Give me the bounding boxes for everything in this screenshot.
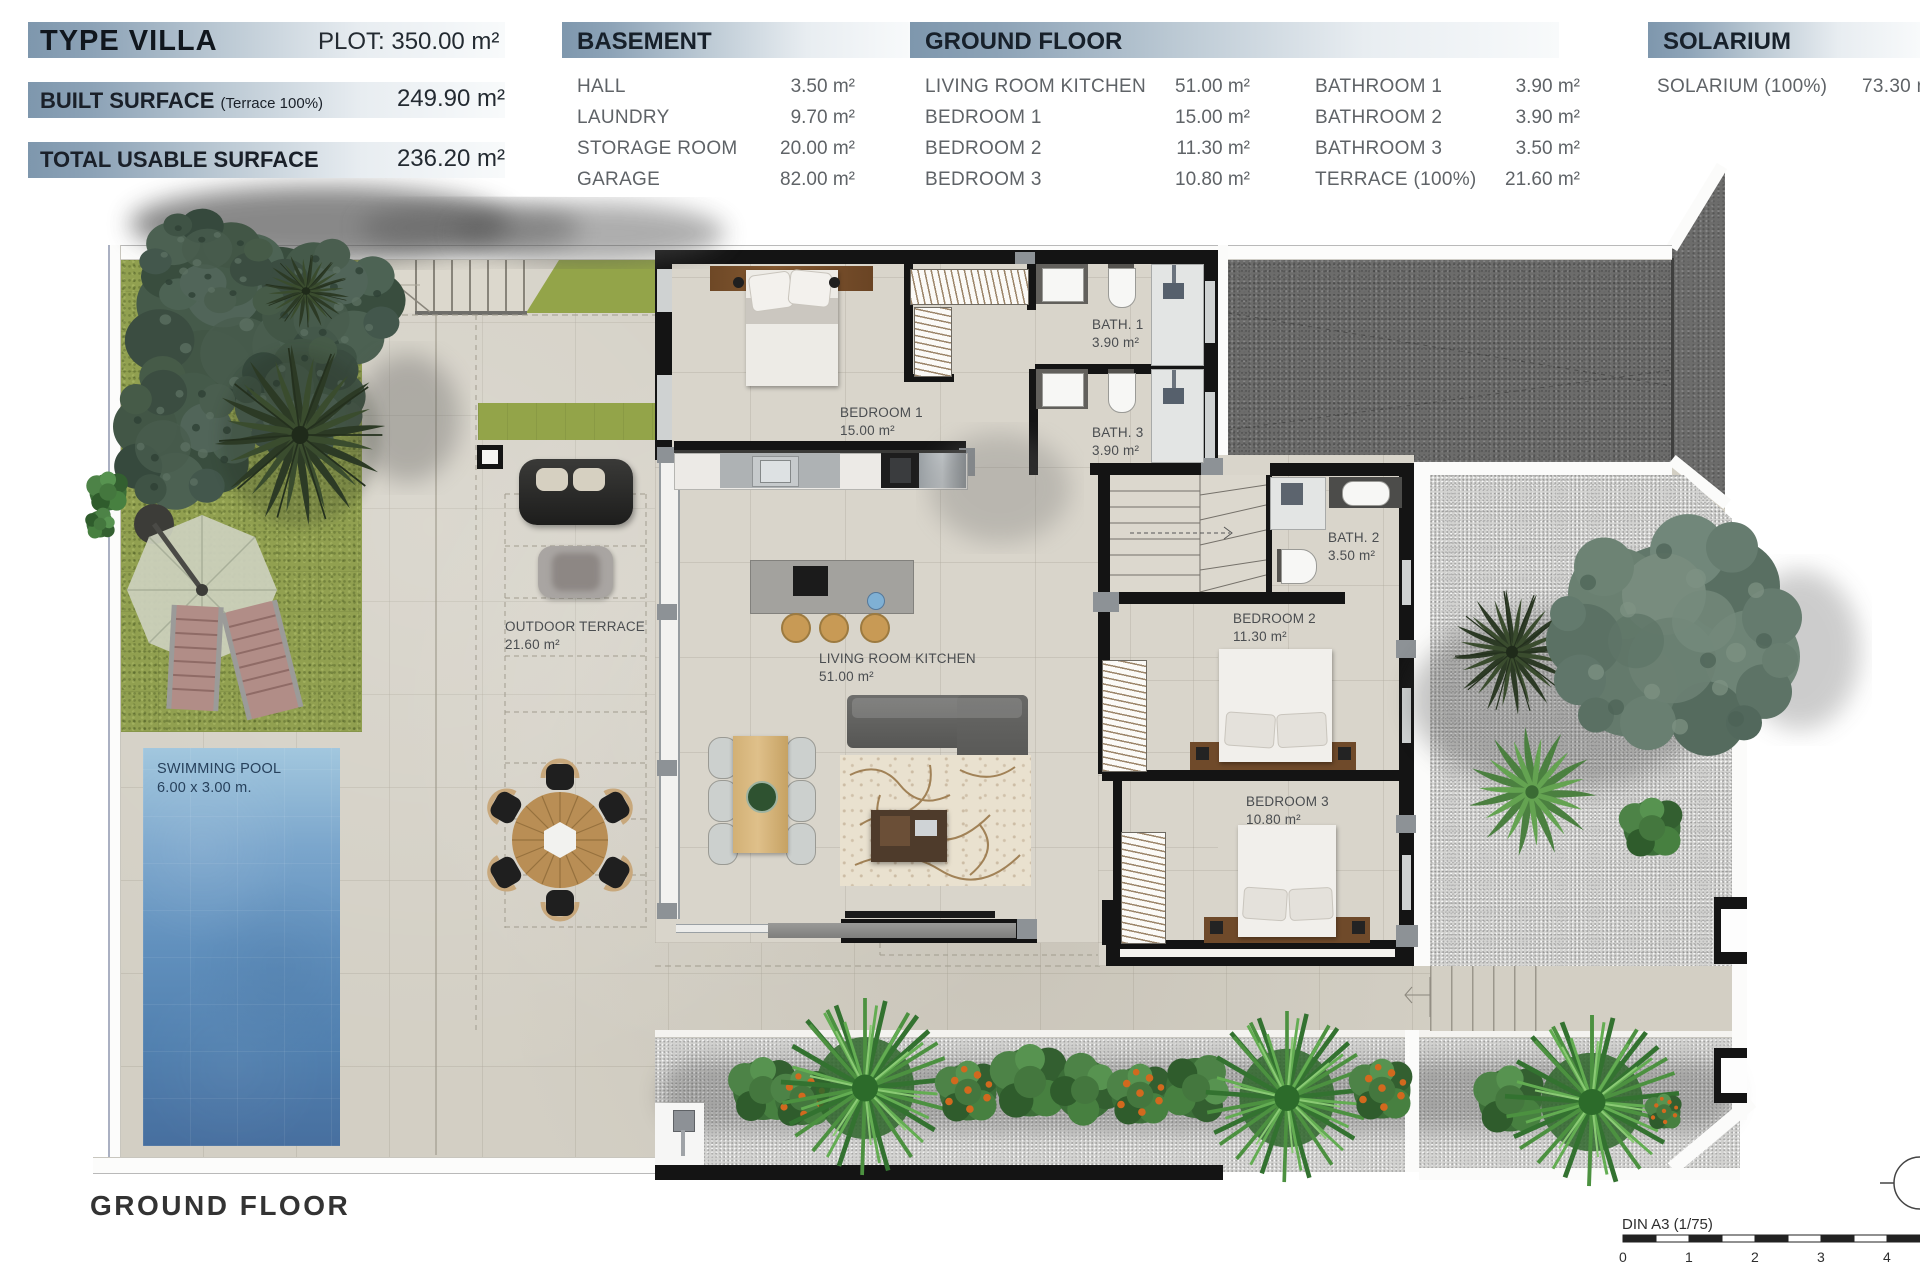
svg-text:3: 3 [1817,1249,1825,1265]
svg-text:4: 4 [1883,1249,1891,1265]
svg-text:1: 1 [1685,1249,1693,1265]
svg-text:0: 0 [1619,1249,1627,1265]
svg-text:2: 2 [1751,1249,1759,1265]
